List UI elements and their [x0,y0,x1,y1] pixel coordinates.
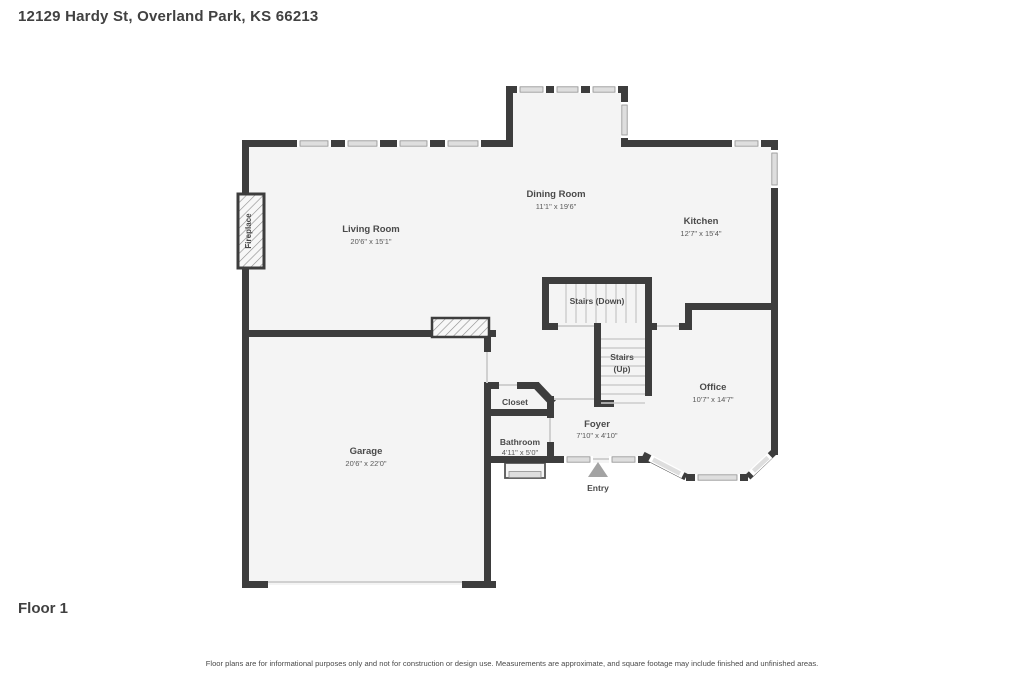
wall-stairsdown-right [645,277,652,330]
kitchen-dims: 12'7" x 15'4" [680,229,721,238]
wall-stairsdown-bottom-stub [542,323,558,330]
office-label: Office [700,382,727,393]
garage-stoop [432,318,489,337]
closet-label: Closet [502,397,528,407]
room-dining-bay [508,90,625,146]
stairs-down-label: Stairs (Down) [570,296,625,306]
stairs-up-label-line2: (Up) [614,364,631,374]
wall-closet-bathroom-divider [484,409,548,416]
wall-closet-top-left-stub [484,382,499,389]
floor-plan-canvas: Living Room 20'6" x 15'1" Dining Room 11… [0,0,1024,682]
foyer-label: Foyer [584,419,610,430]
bathroom-label: Bathroom [500,437,541,447]
living-room-dims: 20'6" x 15'1" [350,237,391,246]
fireplace-label: Fireplace [244,213,253,249]
garage-dims: 20'6" x 22'0" [345,459,386,468]
wall-kitchen-bottom [685,303,778,310]
wall-hall-door-right-stub [679,323,692,330]
bathroom-dims: 4'11" x 5'0" [502,448,539,457]
bathroom-window [509,472,541,478]
wall-garage-bottom-right-stub [462,581,496,588]
floor-label: Floor 1 [18,600,68,617]
living-room-label: Living Room [342,224,400,235]
wall-foyer-left-upper [547,396,554,418]
wall-bathroom-bottom [484,456,554,463]
floor-areas [245,90,775,585]
wall-bay-left [506,88,513,147]
foyer-dims: 7'10" x 4'10" [576,431,617,440]
entry-arrow-icon [588,462,608,477]
wall-garage-bottom-left-stub [242,581,268,588]
stairs-up-label-line1: Stairs [610,352,634,362]
dining-room-dims: 11'1" x 19'6" [536,202,577,211]
office-dims: 10'7" x 14'7" [692,395,733,404]
wall-stairsdown-left [542,277,549,330]
floor-plan-page: 12129 Hardy St, Overland Park, KS 66213 [0,0,1024,682]
garage-label: Garage [350,446,383,457]
wall-stairsup-left [594,323,601,407]
wall-stairsup-right [645,323,652,396]
entry-label: Entry [587,483,609,493]
wall-stairsdown-top [542,277,652,284]
disclaimer-text: Floor plans are for informational purpos… [0,659,1024,668]
dining-room-label: Dining Room [526,189,585,200]
kitchen-label: Kitchen [684,216,719,227]
wall-office-right [771,303,778,455]
